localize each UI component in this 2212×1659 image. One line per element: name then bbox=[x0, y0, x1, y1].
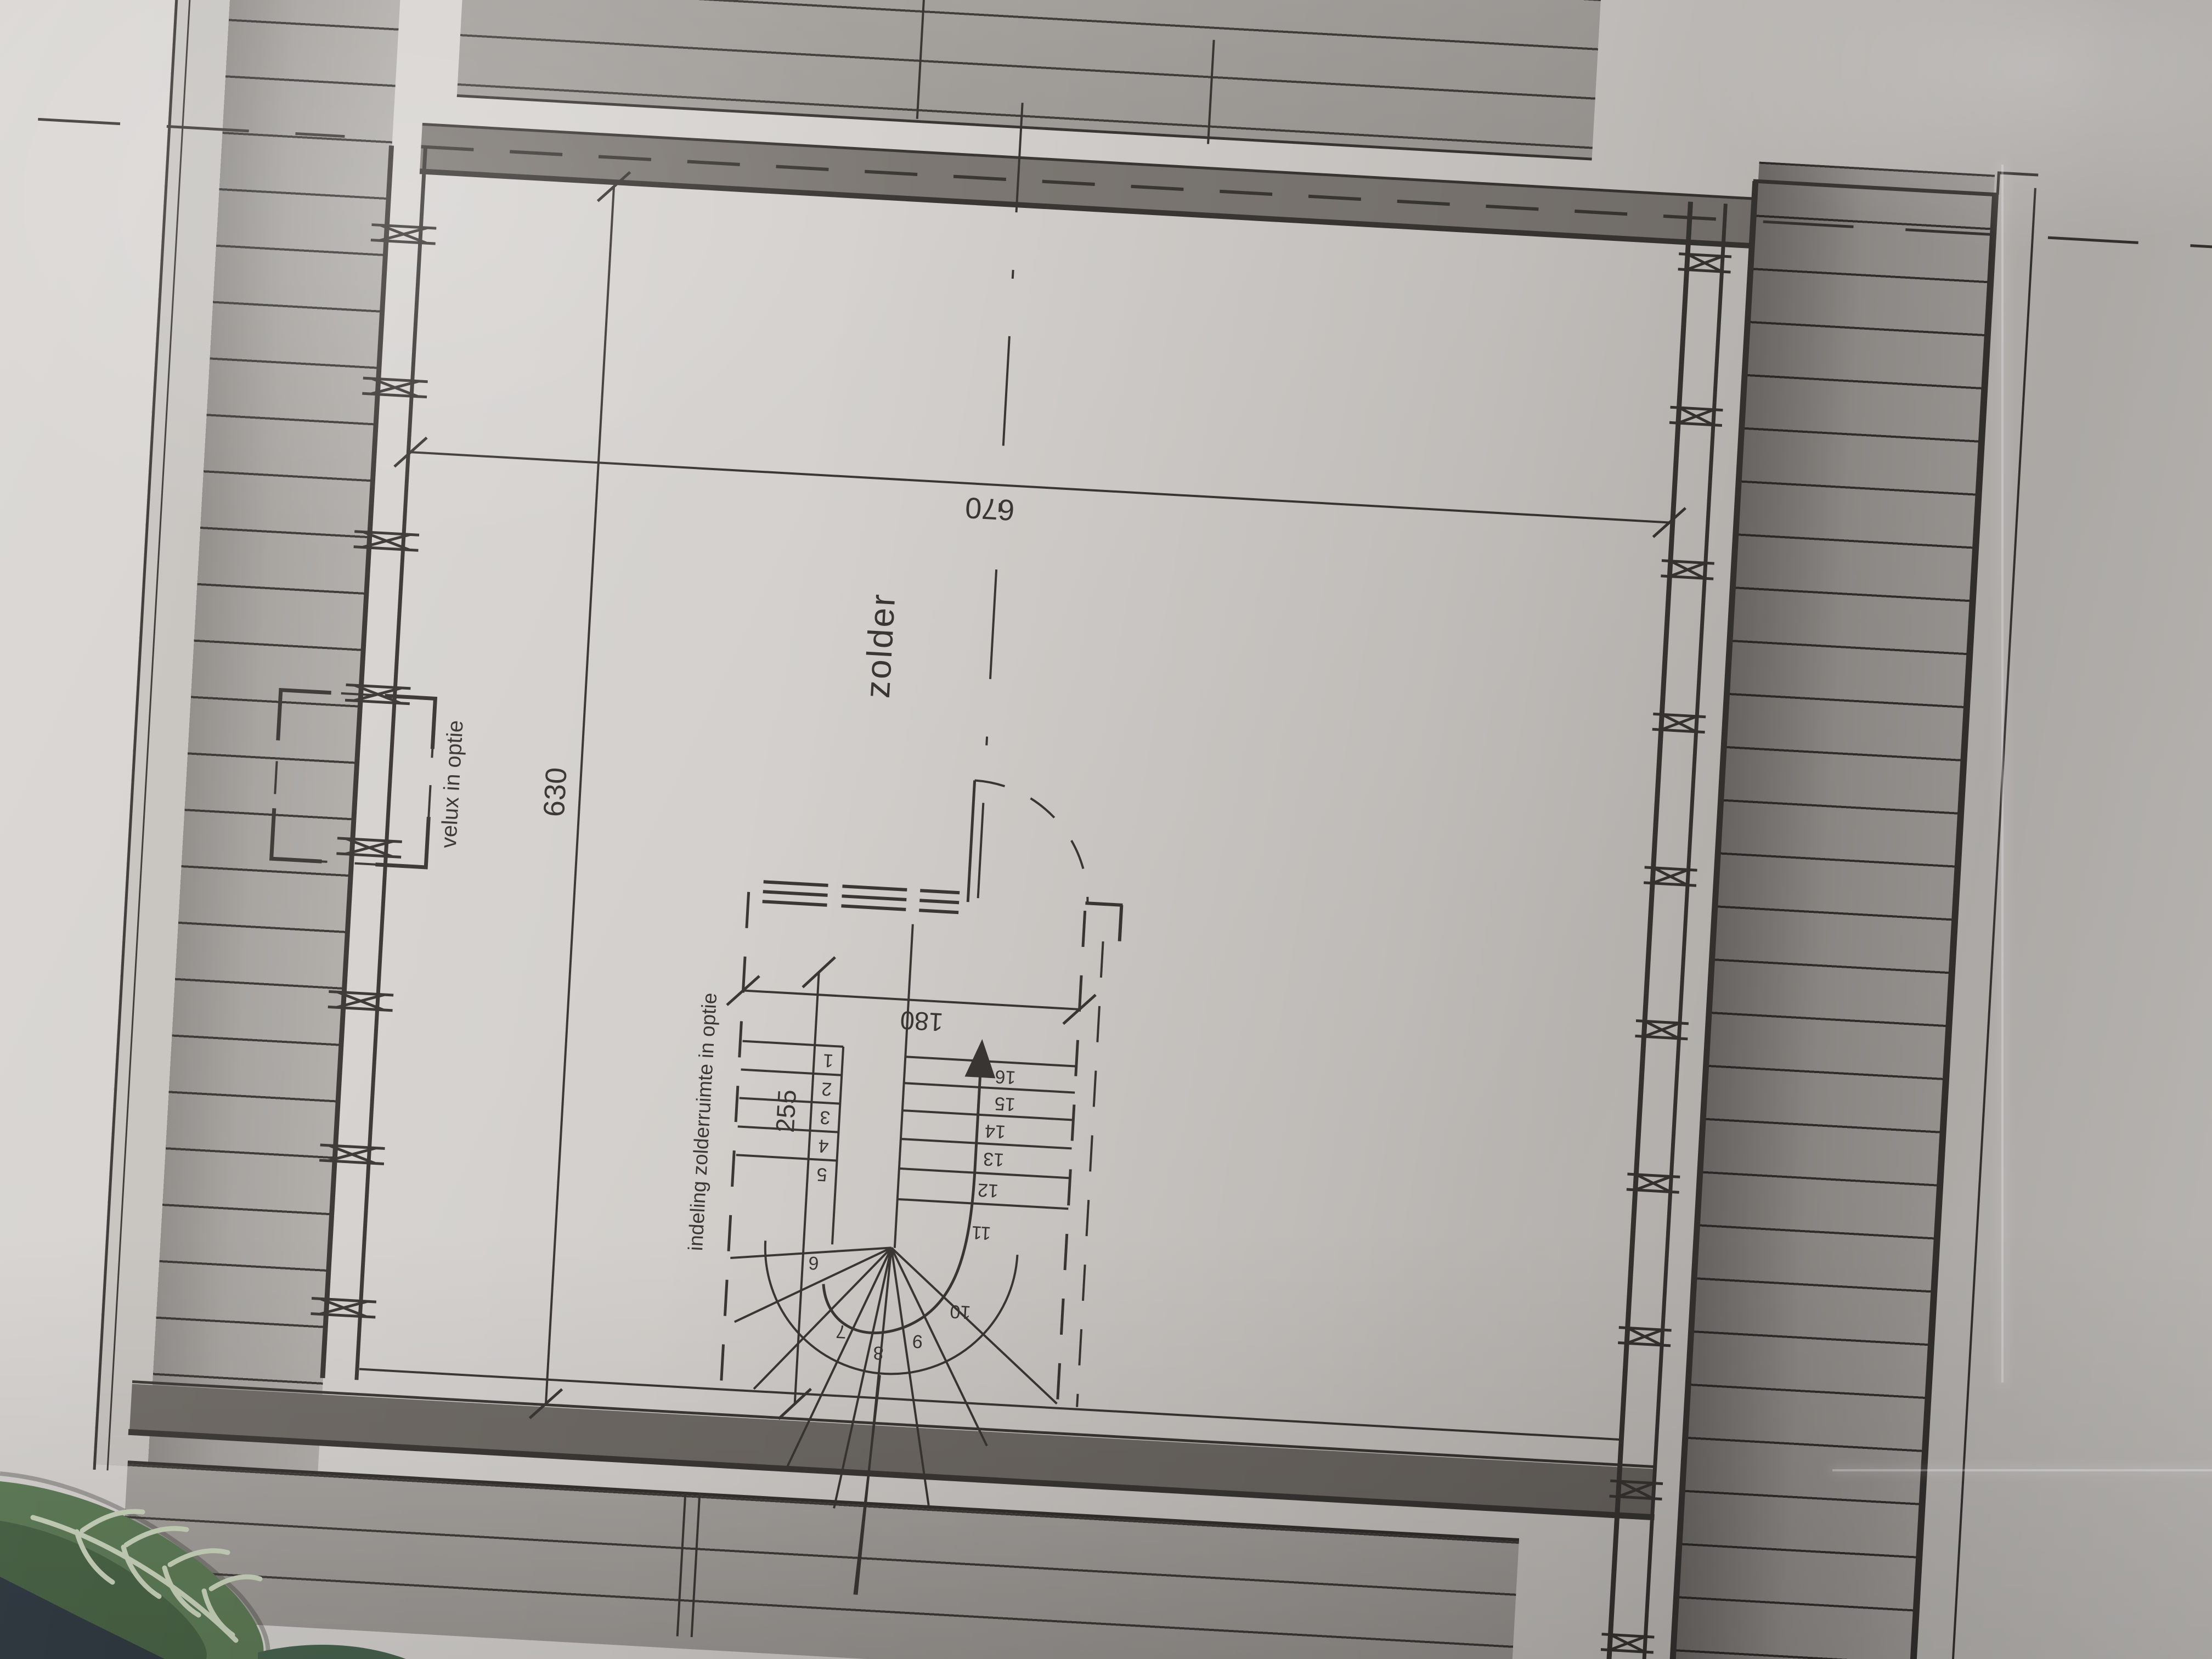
dim-255-line bbox=[795, 972, 819, 1404]
wall-tie-symbol bbox=[311, 1299, 376, 1318]
wall-tie-symbol bbox=[336, 838, 402, 857]
stair-step-number-2: 2 bbox=[821, 1077, 832, 1099]
stair-enclosure-right-dashed2 bbox=[1077, 941, 1103, 1407]
top-strip-center-tick bbox=[1208, 40, 1214, 144]
stair-step-number-16: 16 bbox=[995, 1065, 1017, 1088]
axis-dashes-left bbox=[38, 119, 345, 136]
dim-630-text: 630 bbox=[537, 766, 574, 817]
left-wall-inner-face bbox=[357, 148, 426, 1380]
door-swing-arc bbox=[968, 780, 1094, 904]
dim-670-text: 670 bbox=[964, 490, 1015, 527]
stair-step-number-12: 12 bbox=[977, 1178, 999, 1201]
right-band-right-heavy-line bbox=[1911, 195, 1995, 1659]
stair-step-number-9: 9 bbox=[912, 1330, 923, 1352]
stair-stringer-inner-left bbox=[832, 1047, 843, 1244]
wall-tie-symbol bbox=[371, 225, 436, 244]
plan-linework bbox=[0, 0, 2212, 1659]
bottom-band-upper-edge bbox=[132, 1381, 1655, 1466]
axis-dashes-right bbox=[1763, 222, 2212, 249]
stair-step-number-7: 7 bbox=[836, 1320, 847, 1342]
stair-step-number-6: 6 bbox=[808, 1251, 820, 1273]
top-band-upper-edge bbox=[422, 124, 1757, 199]
left-band-outer-line bbox=[94, 0, 179, 1470]
wall-tie-symbol bbox=[362, 378, 427, 397]
wall-tie-symbol bbox=[328, 991, 393, 1011]
door-leaf bbox=[968, 780, 974, 902]
bottom-band-lower-edge bbox=[128, 1432, 1655, 1517]
right-band-top-edge bbox=[1753, 181, 1997, 195]
dim-180-text: 180 bbox=[899, 1005, 944, 1037]
stair-enclosure-left-dashed bbox=[721, 892, 748, 1387]
wall-tie-symbol bbox=[319, 1145, 385, 1164]
left-band-outer-line2 bbox=[108, 0, 193, 1470]
stair-winder-rays bbox=[712, 1239, 1065, 1605]
stair-step-number-14: 14 bbox=[984, 1120, 1006, 1142]
left-wall-outer-face bbox=[323, 145, 392, 1378]
walk-line-exit bbox=[854, 1374, 879, 1595]
floor-plan-sheet: zolder 670 630 255 180 velux in optie in… bbox=[0, 0, 2212, 1659]
wall-tie-symbol bbox=[354, 532, 419, 551]
stair-step-number-1: 1 bbox=[822, 1049, 834, 1071]
stair-step-number-3: 3 bbox=[819, 1106, 831, 1128]
dim-255-text: 255 bbox=[770, 1089, 802, 1133]
stair-step-number-8: 8 bbox=[873, 1341, 884, 1363]
option-wall-segments bbox=[763, 882, 960, 912]
stair-step-number-11: 11 bbox=[971, 1221, 991, 1244]
stair-step-number-15: 15 bbox=[994, 1092, 1016, 1115]
bottom-strip-division bbox=[678, 1493, 700, 1637]
walk-line-arrowhead bbox=[964, 1038, 997, 1078]
stair-step-number-10: 10 bbox=[950, 1300, 972, 1323]
photo-of-floor-plan: zolder 670 630 255 180 velux in optie in… bbox=[0, 0, 2212, 1659]
right-band-corner-step bbox=[1997, 173, 2038, 197]
right-outer-thin-line bbox=[1950, 188, 2035, 1659]
leaf-sliver bbox=[258, 1645, 406, 1659]
stair-step-number-13: 13 bbox=[983, 1148, 1005, 1170]
door-jamb-bracket bbox=[1084, 903, 1123, 941]
stair-step-number-4: 4 bbox=[818, 1135, 830, 1156]
room-label: zolder bbox=[857, 591, 904, 699]
top-strip-division-line bbox=[917, 0, 924, 119]
right-wall-inner-face bbox=[1607, 202, 1690, 1659]
stair-step-number-5: 5 bbox=[816, 1163, 828, 1185]
